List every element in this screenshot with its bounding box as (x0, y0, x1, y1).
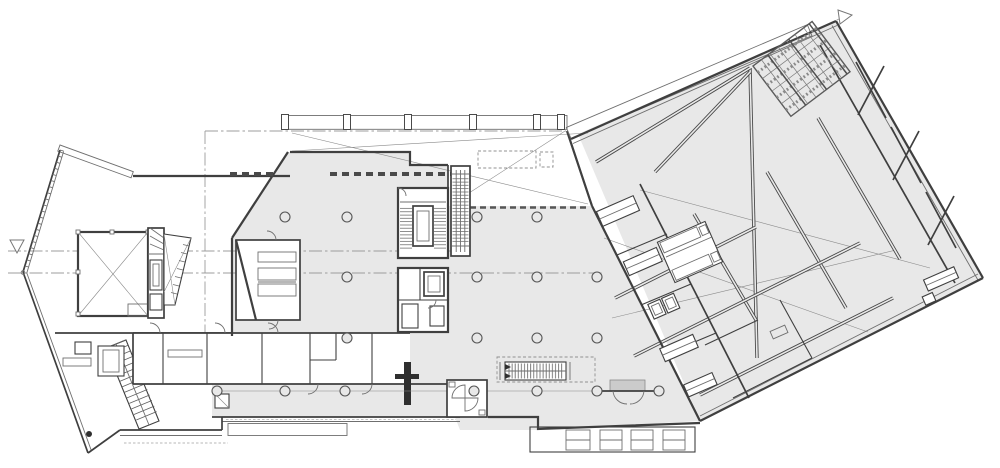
column (472, 272, 482, 282)
facade-post (344, 115, 351, 130)
facade-post (558, 115, 565, 130)
escalator-bank-north (451, 166, 470, 256)
facade-post (405, 115, 412, 130)
facade-post (534, 115, 541, 130)
column (469, 386, 479, 396)
stair-ladders (566, 430, 685, 450)
column (592, 386, 602, 396)
elevator (413, 206, 433, 246)
column (592, 272, 602, 282)
facade-post (282, 115, 289, 130)
external-south-stair (530, 427, 695, 452)
elevator-shaft (150, 260, 162, 290)
hatched-grate-strip (228, 424, 347, 436)
west-wing-north-louver-band (58, 145, 134, 178)
column (342, 212, 352, 222)
column (532, 212, 542, 222)
void-outline-dashed (478, 151, 536, 168)
facade-posts (282, 115, 565, 130)
revolving-door-vestibule (447, 380, 487, 417)
floor-plan: Ground floor plan Black-and-white archit… (0, 0, 1000, 468)
wc-stalls (63, 358, 91, 366)
column (280, 386, 290, 396)
double-height-room (76, 230, 150, 316)
column (342, 272, 352, 282)
service-core-mid (398, 268, 448, 332)
column (342, 333, 352, 343)
column (472, 333, 482, 343)
column (592, 333, 602, 343)
southwest-corner-wall (88, 430, 120, 453)
column (472, 212, 482, 222)
north-louver-band (283, 116, 567, 130)
corner-column (86, 431, 92, 437)
west-core (148, 228, 164, 318)
column (532, 333, 542, 343)
stair-core-mid (398, 188, 448, 258)
entrance-mat (610, 380, 645, 391)
ramp-trapezoid (164, 234, 191, 305)
drawing-sheet: Ground floor plan Black-and-white archit… (0, 0, 1000, 468)
column (654, 386, 664, 396)
top-right-section-marker-icon (838, 10, 852, 24)
column (340, 386, 350, 396)
facade-post (470, 115, 477, 130)
column (532, 272, 542, 282)
column (280, 212, 290, 222)
column (212, 386, 222, 396)
column (532, 386, 542, 396)
stair-core-west (236, 231, 300, 329)
